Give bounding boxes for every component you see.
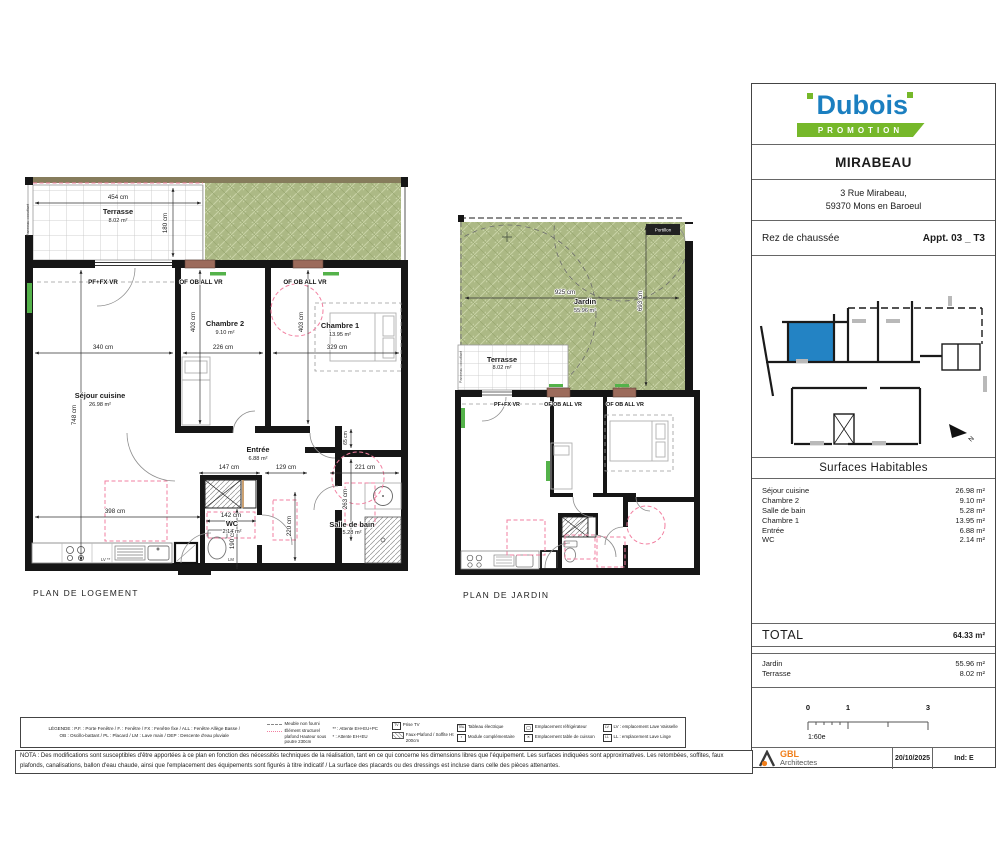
surface-label: Terrasse: [762, 669, 791, 679]
outdoor-surfaces: Jardin55.96 m² Terrasse8.02 m²: [752, 653, 995, 688]
scale-tick-label: 3: [926, 703, 930, 712]
scale-tick-label: 1: [846, 703, 850, 712]
floor-level: Rez de chaussée: [762, 233, 839, 244]
brand-tagline: PROMOTION: [818, 126, 903, 135]
room-area: 55.96 m²: [574, 308, 596, 314]
surfaces-table: Séjour cuisine26.98 m² Chambre 29.10 m² …: [752, 479, 995, 624]
scale-tick-label: 0: [806, 703, 810, 712]
table-row: Séjour cuisine26.98 m²: [762, 486, 985, 496]
bed-chambre2: [182, 357, 210, 425]
table-row: Chambre 29.10 m²: [762, 496, 985, 506]
plan-jardin: Portillon Panneau occultant 925 cm 693 c…: [450, 195, 710, 605]
room-label: Salle de bain: [329, 520, 375, 529]
key-plan: N: [752, 256, 995, 458]
table-row: Entrée6.88 m²: [762, 526, 985, 536]
closet: [562, 517, 596, 537]
surface-value: 2.14 m²: [960, 535, 985, 545]
surface-label: Jardin: [762, 659, 782, 669]
window-mark-icon: [27, 283, 32, 313]
dim-label: 220 cm: [286, 516, 293, 536]
garden-patch: [205, 183, 401, 260]
level-row: Rez de chaussée Appt. 03 _ T3: [752, 221, 995, 256]
project-address: 3 Rue Mirabeau, 59370 Mons en Baroeul: [752, 180, 995, 221]
room-label: Terrasse: [103, 207, 133, 216]
surface-label: WC: [762, 535, 775, 545]
room-label: Terrasse: [487, 355, 517, 364]
dim-label: 180 cm: [162, 213, 169, 233]
dishwasher-icon: LV: [603, 724, 612, 732]
surface-label: Entrée: [762, 526, 784, 536]
architect-subtitle: Architectes: [780, 759, 817, 767]
dashed-line-icon: [267, 724, 282, 725]
legend-label: LV : emplacement Lave Vaisselle: [614, 724, 678, 729]
room-label: Chambre 1: [321, 321, 359, 330]
date-cell: 20/10/2025: [892, 748, 932, 769]
plan-caption: PLAN DE LOGEMENT: [33, 588, 139, 598]
module-box: [588, 517, 596, 537]
occulting-panel-label: Panneau occultant: [25, 203, 30, 236]
closet: [205, 480, 256, 508]
legend-label: * : Attente EH+EU: [333, 734, 368, 739]
logo-accent-square-icon: [907, 92, 913, 98]
signature-row: GBL Architectes 20/10/2025 Ind: E: [752, 747, 995, 769]
surface-value: 6.88 m²: [960, 526, 985, 536]
legend-intro-line: LÉGENDE : P.F. : Porte Fenêtre / F. : Fe…: [24, 726, 264, 732]
washer-icon: LL: [603, 734, 612, 742]
north-arrow-icon: N: [949, 424, 976, 443]
exterior-walls: [455, 390, 700, 575]
room-area: 8.02 m²: [109, 218, 128, 224]
apartment-number: Appt. 03 _ T3: [923, 233, 985, 244]
vent-mark-icon: [549, 384, 563, 387]
dim-label: 142 cm: [221, 512, 241, 519]
surface-value: 8.02 m²: [960, 669, 985, 679]
dim-label: 403 cm: [298, 312, 305, 332]
table-row: WC2.14 m²: [762, 535, 985, 545]
garden-hedge-strip: [33, 177, 408, 183]
sink: [516, 555, 533, 567]
room-area: 5.28 m²: [343, 530, 362, 536]
room-label: Chambre 2: [206, 319, 244, 328]
room-area: 26.98 m²: [89, 402, 111, 408]
gate-label: Portillon: [655, 228, 672, 233]
false-ceiling-icon: [392, 732, 404, 739]
dim-label: 226 cm: [213, 344, 233, 351]
handbasin-label: LM: [228, 557, 234, 562]
address-line: 3 Rue Mirabeau,: [840, 187, 907, 201]
tv-socket-icon: TV: [392, 722, 401, 730]
fridge-icon: [524, 724, 533, 732]
north-label: N: [967, 435, 975, 443]
vent-mark-icon: [615, 384, 629, 387]
window-mark-icon: [546, 461, 550, 481]
room-label: Jardin: [574, 297, 597, 306]
surface-value: 5.28 m²: [960, 506, 985, 516]
scale-ratio: 1:60e: [808, 734, 826, 741]
room-area: 2.14 m²: [223, 529, 242, 535]
occulting-panel-label: Panneau occultant: [458, 350, 463, 383]
table-row: Terrasse8.02 m²: [762, 669, 985, 679]
title-block: Dubois PROMOTION MIRABEAU 3 Rue Mirabeau…: [751, 83, 996, 768]
scale-ruler: [808, 722, 928, 730]
legend-label: LL : emplacement Lave Linge: [614, 734, 671, 739]
surface-value: 26.98 m²: [955, 486, 985, 496]
surface-label: Salle de bain: [762, 506, 805, 516]
window-label: PF+FX VR: [494, 402, 520, 408]
dishwasher-label: LV **: [101, 557, 111, 562]
dim-label: 925 cm: [555, 289, 575, 296]
window-label: PF+FX VR: [88, 279, 118, 286]
project-name: MIRABEAU: [752, 145, 995, 180]
window-label: OF OB ALL VR: [179, 279, 223, 286]
kitchen: [461, 551, 557, 569]
dim-label: 454 cm: [108, 194, 128, 201]
dim-label: 398 cm: [105, 508, 125, 515]
legend: LÉGENDE : P.F. : Porte Fenêtre / F. : Fe…: [20, 717, 686, 748]
brand-logo: Dubois PROMOTION: [752, 84, 995, 145]
vent-mark-icon: [323, 272, 339, 276]
room-label: Séjour cuisine: [75, 391, 126, 400]
brand-tagline-banner: PROMOTION: [797, 123, 925, 137]
electrical-panel-icon: TBL: [457, 724, 466, 732]
total-label: TOTAL: [762, 628, 804, 642]
room-area: 9.10 m²: [216, 330, 235, 336]
architect-logo: GBL Architectes: [752, 748, 892, 769]
plan-sheet: 454 cm 180 cm 340 cm 748 cm 398 cm 403 c…: [0, 0, 1000, 857]
total-value: 64.33 m²: [953, 631, 985, 640]
room-area: 6.88 m²: [249, 456, 268, 462]
room-area: 13.95 m²: [329, 332, 351, 338]
table-row: Jardin55.96 m²: [762, 659, 985, 669]
table-row: Chambre 113.95 m²: [762, 516, 985, 526]
surface-value: 9.10 m²: [960, 496, 985, 506]
address-line: 59370 Mons en Baroeul: [826, 200, 922, 214]
highlighted-unit: [788, 322, 834, 362]
window-sill-ch2: [185, 260, 215, 268]
radiator-symbol: [305, 447, 335, 453]
bed-chambre2: [551, 443, 572, 489]
dim-label: 693 cm: [637, 291, 644, 311]
legend-intro: LÉGENDE : P.F. : Porte Fenêtre / F. : Fe…: [24, 726, 264, 738]
dim-label: 340 cm: [93, 344, 113, 351]
table-row: Salle de bain5.28 m²: [762, 506, 985, 516]
legend-label: Emplacement table de cuisson: [535, 734, 595, 739]
module-icon: ▪: [457, 734, 466, 742]
terrace-area: Panneau occultant: [458, 345, 568, 390]
architect-mark-icon: [758, 750, 776, 768]
total-row: TOTAL 64.33 m²: [752, 624, 995, 647]
legend-label: Élément structurel plafond Hauteur sous …: [284, 728, 329, 743]
vent-mark-icon: [210, 272, 226, 276]
room-label: WC: [226, 519, 239, 528]
dim-label: 329 cm: [327, 344, 347, 351]
logo-accent-square-icon: [807, 93, 813, 99]
legend-intro-line: OB : Oscillo-battant / PL : Placard / LM…: [24, 733, 264, 739]
sink: [148, 546, 169, 560]
legend-label: Module complémentaire: [468, 734, 515, 739]
legend-label: Emplacement réfrigérateur: [535, 724, 587, 729]
dim-label: 65 cm: [343, 431, 349, 445]
scale-bar: 0 1 3 1:60e: [752, 688, 995, 747]
room-label: Entrée: [246, 445, 269, 454]
window-label: OF OB ALL VR: [606, 402, 644, 408]
revision-cell: Ind: E: [932, 748, 995, 769]
dim-label: 748 cm: [71, 405, 78, 425]
surface-value: 55.96 m²: [955, 659, 985, 669]
surface-value: 13.95 m²: [955, 516, 985, 526]
window-mark-icon: [461, 408, 465, 428]
surface-label: Séjour cuisine: [762, 486, 809, 496]
nota-note: NOTA : Des modifications sont susceptibl…: [15, 750, 753, 774]
dim-label: 403 cm: [190, 312, 197, 332]
dotted-line-icon: [267, 731, 282, 732]
legend-label: Faux-Plafond / Soffite Ht 200cm: [406, 732, 454, 742]
window-label: OF OB ALL VR: [283, 279, 327, 286]
legend-label: ** : Attente EH+EU+PC: [333, 726, 378, 731]
window-sill-ch1: [613, 388, 636, 397]
window-label: OF OB ALL VR: [544, 402, 582, 408]
surface-label: Chambre 2: [762, 496, 799, 506]
building-outline: [761, 301, 942, 444]
legend-label: Prise TV: [403, 722, 420, 727]
module-box: [243, 480, 256, 508]
dim-label: 263 cm: [342, 489, 349, 509]
dim-label: 129 cm: [276, 464, 296, 471]
room-area: 8.02 m²: [493, 365, 512, 371]
legend-label: Meuble non fourni: [284, 721, 319, 726]
surface-label: Chambre 1: [762, 516, 799, 526]
window-sill-ch1: [293, 260, 323, 268]
window-sill-ch2: [547, 388, 570, 397]
surfaces-title: Surfaces Habitables: [752, 458, 995, 479]
kitchen: [32, 543, 197, 563]
hob-icon: ✕: [524, 734, 533, 742]
plan-caption: PLAN DE JARDIN: [463, 590, 549, 600]
dim-label: 147 cm: [219, 464, 239, 471]
dim-label: 221 cm: [355, 464, 375, 471]
bed-chambre1: [605, 415, 673, 471]
legend-label: Tableau électrique: [468, 724, 504, 729]
plan-logement: 454 cm 180 cm 340 cm 748 cm 398 cm 403 c…: [15, 175, 440, 605]
brand-name: Dubois: [817, 90, 909, 121]
bed-chambre1: [315, 303, 401, 371]
